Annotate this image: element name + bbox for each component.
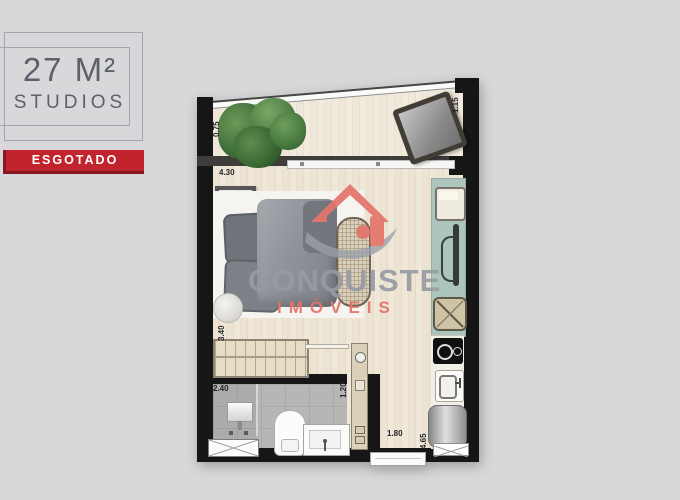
vanity-faucet-stem (324, 443, 326, 451)
shower-mat-pattern (209, 440, 258, 456)
vanity (303, 424, 350, 456)
dim-bath-width: 2.40 (213, 385, 229, 393)
kitchen-sink (435, 370, 464, 402)
tray-lid (439, 191, 458, 200)
dim-balcony-depth: 0.75 (213, 121, 221, 137)
basket (433, 297, 467, 331)
wardrobe-shelf-line (305, 344, 349, 349)
burner (437, 344, 453, 360)
shower-head (227, 402, 253, 422)
door-handle-icon (355, 436, 365, 444)
dim-living-depth: 3.40 (218, 325, 226, 341)
washer (428, 405, 467, 448)
dim-living-width: 4.30 (219, 169, 235, 177)
bed-throw (303, 201, 337, 253)
shower-foot (229, 431, 233, 435)
bathroom-right-wall (366, 374, 380, 454)
left-wall (197, 97, 213, 462)
shower-foot (244, 431, 248, 435)
balcony-corner-cap (455, 78, 479, 93)
dim-balcony-width: 1.15 (452, 97, 460, 113)
sink-basin (439, 375, 457, 399)
bench (336, 217, 371, 307)
entry-door (370, 452, 426, 466)
dim-unit-depth: 4.65 (420, 433, 428, 449)
bedside-table (213, 293, 243, 323)
toilet (274, 410, 306, 456)
door-knob-icon (355, 380, 365, 391)
toilet-seat (281, 439, 299, 452)
entry-door-line (375, 458, 421, 459)
door-handle-icon (355, 426, 365, 434)
tv-bracket (441, 236, 455, 282)
cooktop (433, 338, 463, 364)
door-handle-tick (376, 162, 380, 166)
door-handle-tick (300, 162, 304, 166)
balcony-sliding-door (287, 160, 455, 169)
doormat (433, 443, 469, 456)
shower-mat (208, 439, 259, 457)
plant-blob (270, 112, 306, 150)
dim-entry-width: 1.80 (387, 430, 403, 438)
floor-plan: 0.75 1.15 4.30 3.40 2.40 1.20 1.80 4.65 (0, 0, 680, 500)
shower-stem (238, 421, 242, 430)
wardrobe-rail (215, 356, 307, 358)
wardrobe (213, 339, 309, 378)
door-knob-icon (355, 352, 366, 363)
tray (435, 187, 466, 221)
basket-weave (435, 299, 465, 329)
burner (453, 347, 462, 356)
doormat-pattern (434, 446, 468, 457)
floorplan-screenshot: 27 M² STUDIOS ESGOTADO (0, 0, 680, 500)
bathroom-sliding-door (351, 343, 368, 450)
sink-faucet (459, 378, 461, 388)
dim-bath-passage: 1.20 (340, 382, 348, 398)
shower-glass-line (256, 384, 258, 436)
